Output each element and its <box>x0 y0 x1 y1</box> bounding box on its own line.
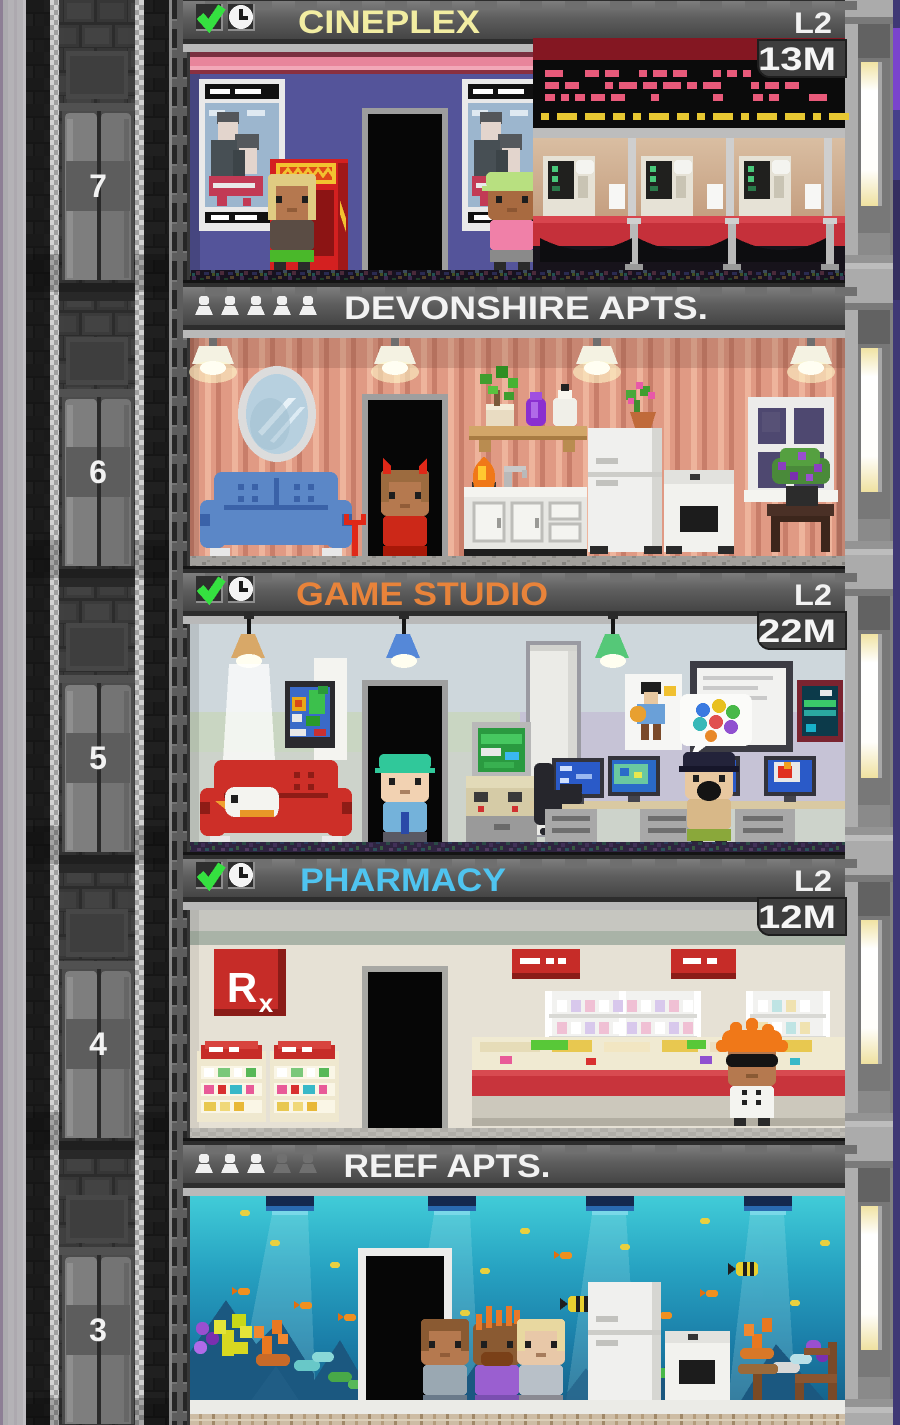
svg-text:12M: 12M <box>758 899 836 935</box>
svg-text:CINEPLEX: CINEPLEX <box>298 4 481 40</box>
svg-text:L2: L2 <box>794 865 832 898</box>
svg-text:L2: L2 <box>794 579 832 612</box>
svg-text:GAME STUDIO: GAME STUDIO <box>296 576 548 612</box>
svg-text:4: 4 <box>89 1026 107 1062</box>
svg-text:5: 5 <box>89 740 107 776</box>
svg-text:22M: 22M <box>758 613 836 649</box>
svg-text:3: 3 <box>89 1312 107 1348</box>
svg-text:6: 6 <box>89 454 107 490</box>
svg-text:L2: L2 <box>794 7 832 40</box>
svg-text:R: R <box>227 964 257 1011</box>
svg-text:DEVONSHIRE APTS.: DEVONSHIRE APTS. <box>344 290 708 326</box>
svg-text:7: 7 <box>89 168 107 204</box>
svg-text:x: x <box>259 988 274 1018</box>
svg-text:REEF APTS.: REEF APTS. <box>344 1148 551 1184</box>
svg-text:13M: 13M <box>758 41 836 77</box>
svg-text:PHARMACY: PHARMACY <box>300 862 506 898</box>
